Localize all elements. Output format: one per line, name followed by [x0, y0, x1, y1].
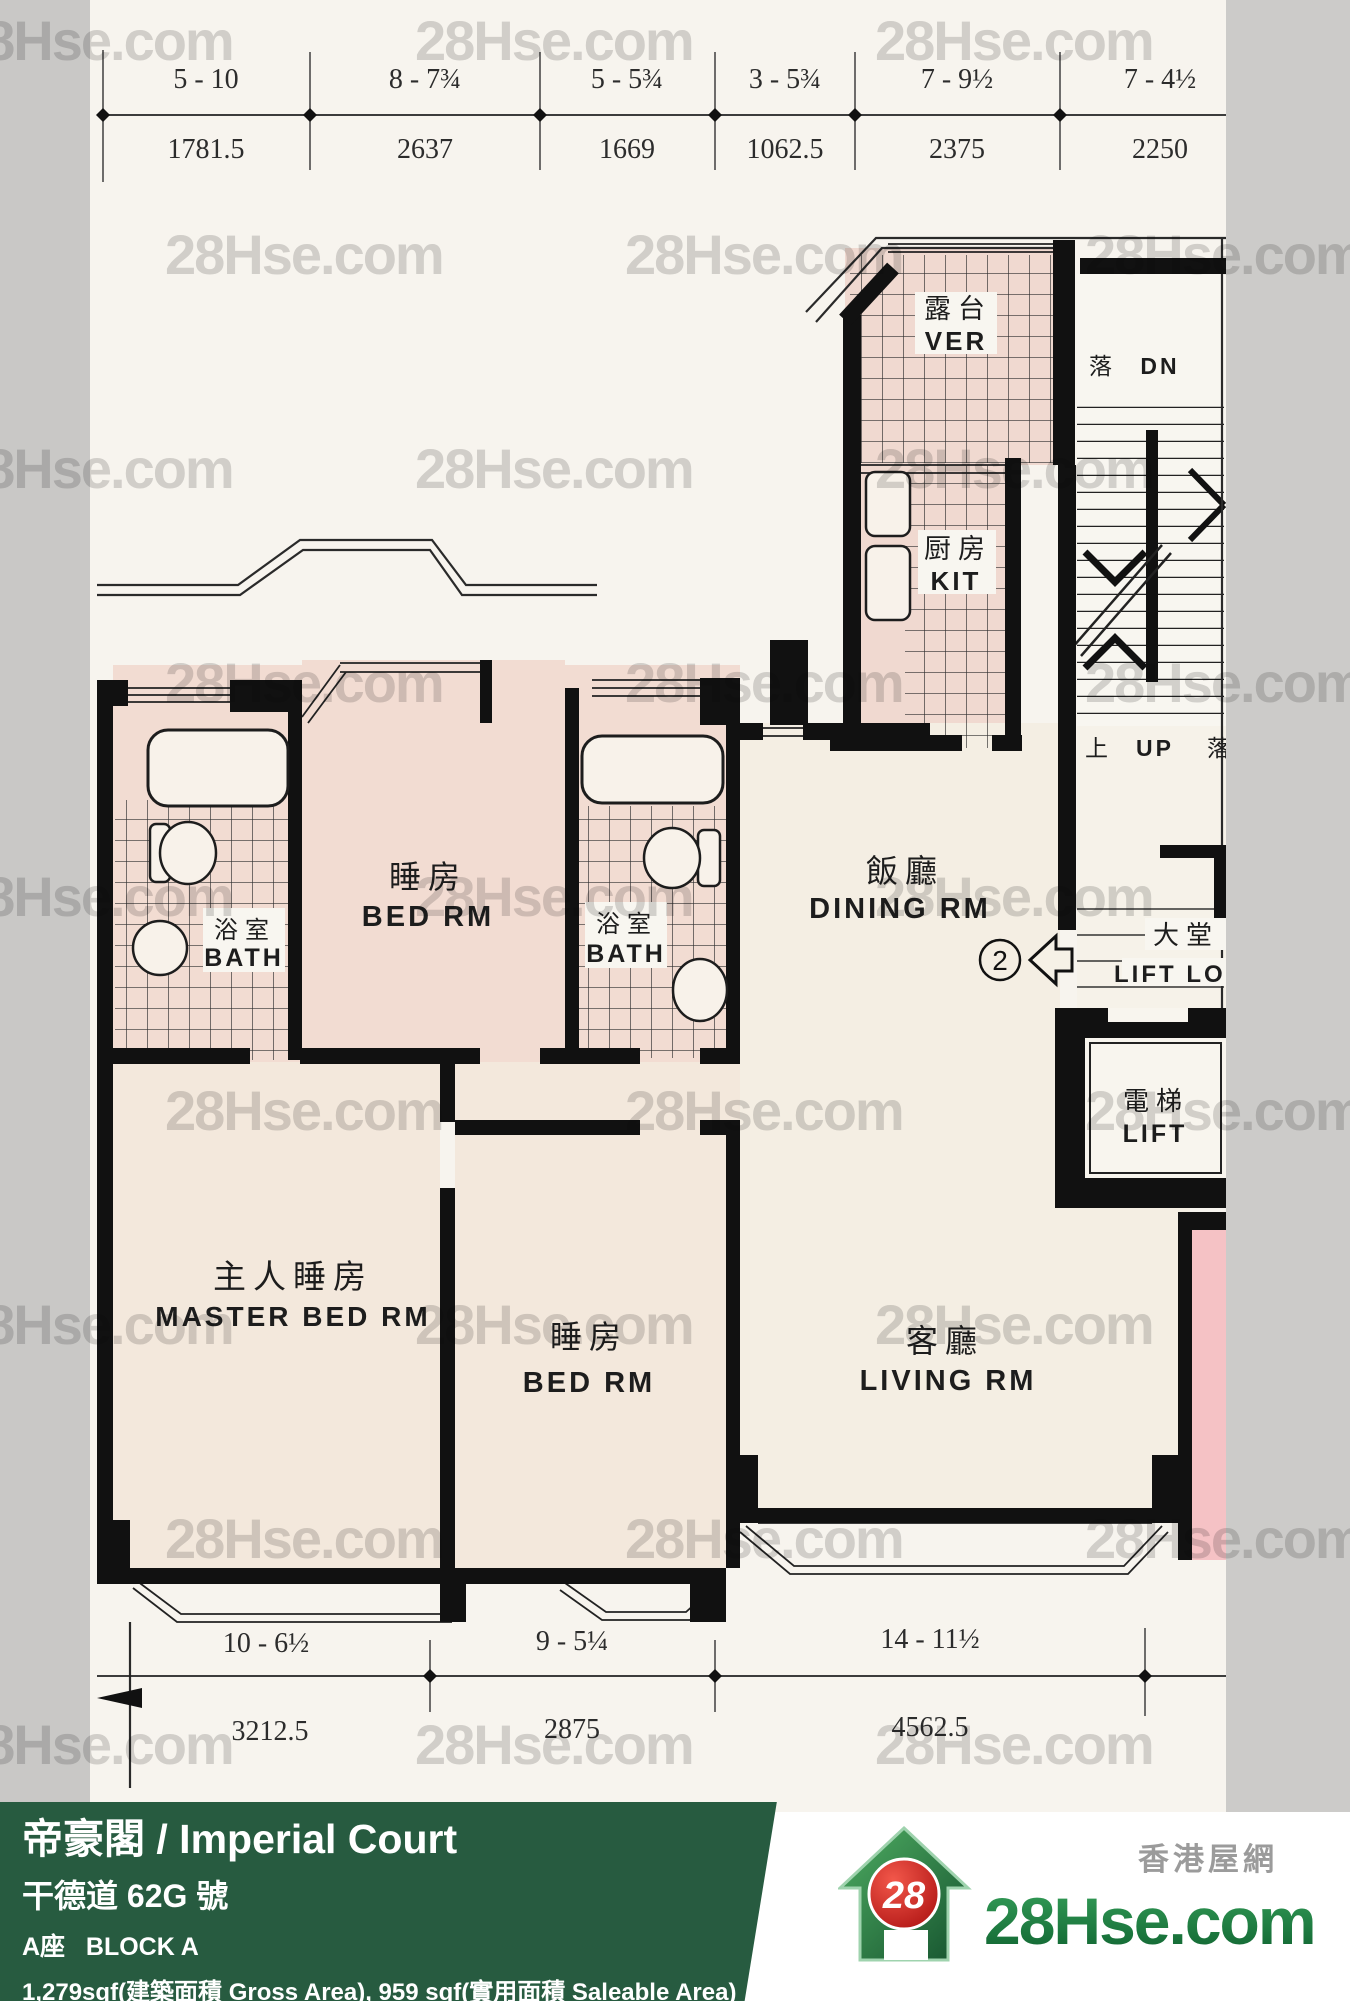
label-bedroom1-en: BED RM: [362, 901, 494, 933]
label-stairs-down-zh: 落: [1089, 353, 1119, 379]
label-dining-zh: 飯廳: [866, 853, 944, 889]
basin-1: [133, 921, 187, 975]
dim-top-mm-0: 1781.5: [168, 134, 245, 165]
estate-block: A座 BLOCK A: [22, 1927, 805, 1963]
logo-badge: 28: [882, 1875, 926, 1917]
dim-bottom-mm-1: 2875: [544, 1714, 600, 1745]
label-bedroom1-zh: 睡房: [389, 859, 467, 895]
kitchen-stove: [866, 546, 910, 620]
label-living-zh: 客廳: [906, 1323, 984, 1359]
label-lobby-zh: 大堂: [1153, 920, 1219, 950]
dim-top-ft-5: 7 - 4½: [1124, 64, 1196, 95]
dim-top-mm-1: 2637: [397, 134, 453, 165]
basin-2: [673, 959, 727, 1021]
label-kitchen-en: KIT: [931, 566, 982, 596]
toilet-2-tank: [698, 830, 720, 886]
dim-top-ft-1: 8 - 7¾: [389, 64, 461, 95]
dim-bottom-ft-2: 14 - 11½: [880, 1624, 979, 1655]
dim-top-ft-2: 5 - 5¾: [591, 64, 663, 95]
dim-top-mm-2: 1669: [599, 134, 655, 165]
label-master-zh: 主人睡房: [213, 1258, 373, 1295]
dim-top-mm-3: 1062.5: [747, 134, 824, 165]
label-master-en: MASTER BED RM: [155, 1301, 430, 1332]
label-bath1-en: BATH: [204, 944, 284, 972]
footer-info-banner: 帝豪閣 / Imperial Court 干德道 62G 號 A座 BLOCK …: [0, 1802, 805, 2001]
floorplan-page: 2 露台 VER 厨房 KIT 睡房 BED RM 浴室 BATH 浴室 BAT…: [0, 0, 1350, 2001]
logo-tagline: 香港屋網: [1138, 1842, 1278, 1877]
label-bath1-zh: 浴室: [214, 917, 276, 944]
dim-bottom-mm-2: 4562.5: [892, 1712, 969, 1743]
dimensions-top: 5 - 10 8 - 7¾ 5 - 5¾ 3 - 5¾ 7 - 9½ 7 - 4…: [96, 50, 1226, 182]
scan-margin-left: [0, 0, 90, 1802]
bathtub-2: [582, 736, 723, 803]
toilet-1-bowl: [160, 822, 216, 884]
kitchen-sink: [866, 472, 910, 536]
estate-area: 1,279sqf(建築面積 Gross Area), 959 sqf(實用面積 …: [22, 1972, 805, 2001]
scan-margin-right: [1226, 0, 1350, 1812]
label-stairs-up-zh: 上: [1085, 735, 1115, 761]
label-kitchen-zh: 厨房: [924, 534, 992, 564]
dimensions-bottom: 10 - 6½ 9 - 5¼ 14 - 11½ 3212.5 2875 4562…: [97, 1624, 1226, 1747]
estate-title: 帝豪閣 / Imperial Court: [22, 1816, 805, 1863]
label-lift-en: LIFT: [1123, 1120, 1188, 1148]
label-lift-zh: 電梯: [1123, 1086, 1189, 1116]
dim-top-mm-5: 2250: [1132, 134, 1188, 165]
label-bath2-en: BATH: [586, 940, 666, 968]
bathtub-1: [148, 730, 288, 806]
label-bath2-zh: 浴室: [596, 911, 658, 938]
house-icon: 28: [840, 1828, 968, 1960]
dim-top-ft-4: 7 - 9½: [921, 64, 993, 95]
toilet-2-bowl: [644, 828, 700, 888]
label-bedroom2-zh: 睡房: [550, 1319, 628, 1355]
label-verandah-zh: 露台: [924, 294, 992, 324]
label-stairs-down-en: DN: [1140, 353, 1179, 379]
dim-bottom-ft-0: 10 - 6½: [223, 1628, 309, 1659]
unit-number: 2: [992, 945, 1008, 976]
dim-bottom-mm-0: 3212.5: [232, 1716, 309, 1747]
logo-name: 28Hse.com: [984, 1884, 1315, 1958]
dim-top-ft-0: 5 - 10: [173, 64, 238, 95]
label-bedroom2-en: BED RM: [523, 1367, 655, 1399]
label-dining-en: DINING RM: [809, 893, 991, 925]
dim-top-ft-3: 3 - 5¾: [749, 64, 821, 95]
dimension-arrow-icon: [97, 1688, 142, 1708]
label-living-en: LIVING RM: [860, 1365, 1037, 1397]
site-logo: 28 28Hse.com 香港屋網: [838, 1822, 1318, 1987]
label-verandah-en: VER: [925, 326, 987, 356]
dim-top-mm-4: 2375: [929, 134, 985, 165]
dim-bottom-ft-1: 9 - 5¼: [536, 1626, 608, 1657]
estate-address: 干德道 62G 號: [22, 1871, 805, 1917]
floor-plan: 2 露台 VER 厨房 KIT 睡房 BED RM 浴室 BATH 浴室 BAT…: [0, 0, 1350, 1790]
label-stairs-up-en: UP: [1136, 735, 1174, 761]
